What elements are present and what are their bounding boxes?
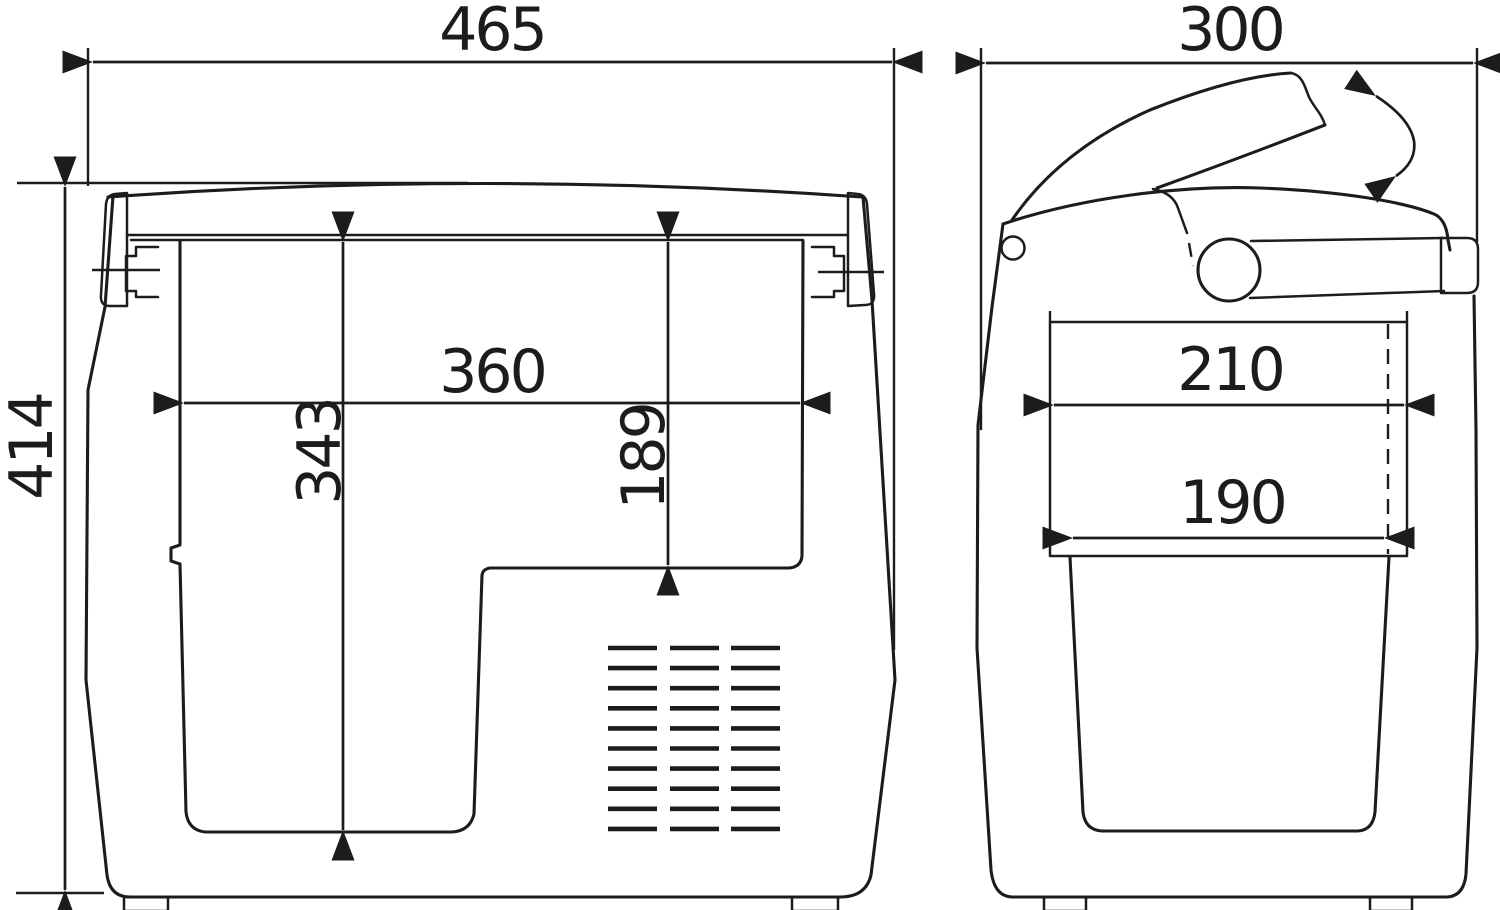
side-lid-open-inner-edge <box>1157 125 1325 188</box>
side-lid-section-line <box>1153 189 1187 233</box>
side-foot-right <box>1370 897 1412 910</box>
side-inner-tub <box>1070 557 1389 831</box>
side-lid-open-outer-edge <box>1012 73 1291 220</box>
lid-swing-arrow-icon <box>1376 96 1414 176</box>
dim-inner-width: 360 <box>184 337 800 407</box>
dim-overall-width: 465 <box>88 0 894 650</box>
dim-360-label: 360 <box>439 337 545 407</box>
front-view <box>86 184 895 910</box>
dim-465-label: 465 <box>439 0 545 65</box>
side-handle-end <box>1198 239 1260 301</box>
cooler-dimension-drawing: 465 414 360 343 189 300 210 <box>0 0 1500 910</box>
front-foot-right <box>792 897 838 910</box>
side-hinge-pivot <box>1002 237 1025 260</box>
dim-300-label: 300 <box>1177 0 1283 65</box>
dim-overall-height: 414 <box>0 183 468 893</box>
side-lid-section-dash <box>1189 243 1193 266</box>
side-handle-cap <box>1441 238 1478 293</box>
front-foot-left <box>124 897 168 910</box>
side-handle-bottom-line <box>1250 291 1444 298</box>
front-latch-left-block <box>126 247 158 297</box>
dim-414-label: 414 <box>0 394 67 500</box>
front-inner-cavity <box>171 241 803 832</box>
front-vent-grille <box>608 648 780 829</box>
front-body-outline <box>86 196 895 897</box>
side-foot-left <box>1044 897 1086 910</box>
side-lid-open-tip <box>1291 73 1325 125</box>
side-handle-top-line <box>1251 238 1443 241</box>
dim-inner-height-full: 343 <box>285 242 355 830</box>
dim-inner-depth-lower: 190 <box>1073 468 1384 538</box>
dim-210-label: 210 <box>1177 335 1283 405</box>
dim-343-label: 343 <box>285 399 355 505</box>
dimensions: 465 414 360 343 189 300 210 <box>0 0 1477 893</box>
side-body-outline <box>977 224 1477 897</box>
dim-190-label: 190 <box>1179 468 1285 538</box>
dim-189-label: 189 <box>609 404 679 510</box>
front-lid-top <box>108 184 862 198</box>
dim-inner-depth-upper: 210 <box>1054 335 1404 405</box>
